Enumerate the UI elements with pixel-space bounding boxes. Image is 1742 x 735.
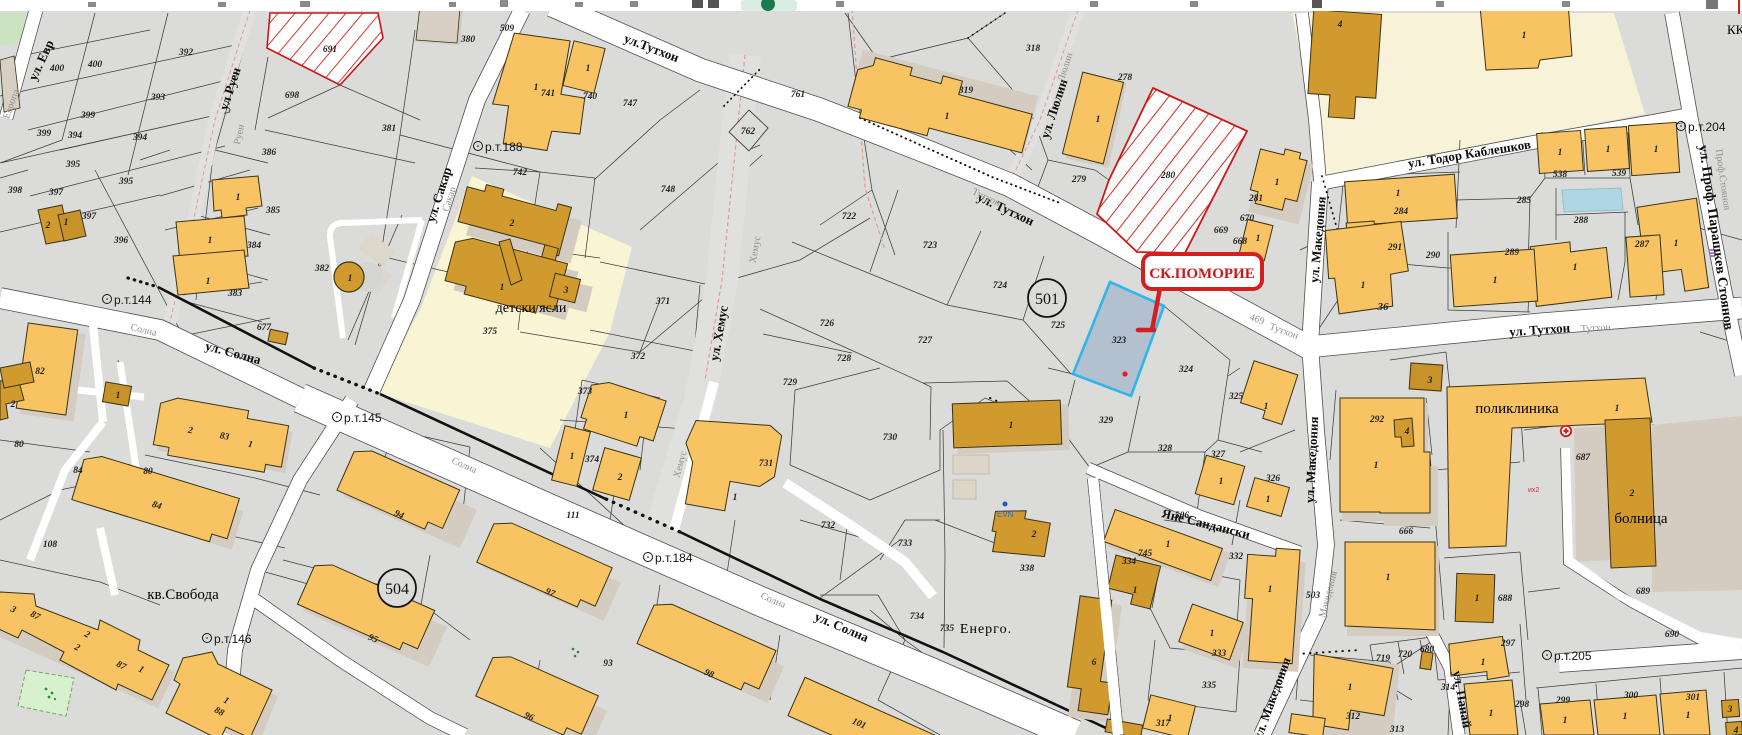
svg-text:392: 392 <box>178 48 194 58</box>
svg-text:1: 1 <box>1615 404 1620 414</box>
svg-text:285: 285 <box>1516 196 1532 206</box>
svg-text:1: 1 <box>1374 461 1379 471</box>
svg-text:1: 1 <box>1219 477 1224 487</box>
svg-text:669: 669 <box>1214 226 1229 236</box>
svg-text:83: 83 <box>219 431 230 443</box>
svg-text:394: 394 <box>67 131 83 141</box>
svg-text:374: 374 <box>584 455 600 465</box>
svg-text:399: 399 <box>36 129 52 139</box>
svg-text:384: 384 <box>246 241 262 251</box>
svg-text:722: 722 <box>842 212 857 222</box>
svg-text:318: 318 <box>1025 44 1041 54</box>
svg-text:312: 312 <box>1345 712 1361 722</box>
svg-text:1: 1 <box>1210 629 1215 639</box>
svg-text:1: 1 <box>236 193 241 203</box>
svg-text:724: 724 <box>993 281 1008 291</box>
svg-text:1: 1 <box>1264 402 1269 412</box>
svg-text:2: 2 <box>1031 530 1037 540</box>
svg-text:690: 690 <box>1665 630 1680 640</box>
svg-text:1: 1 <box>1623 712 1628 722</box>
svg-text:297: 297 <box>1500 639 1517 649</box>
svg-text:327: 327 <box>1210 450 1227 460</box>
svg-text:730: 730 <box>883 433 898 443</box>
svg-text:1: 1 <box>208 236 213 246</box>
svg-text:2: 2 <box>45 221 51 231</box>
svg-text:1: 1 <box>1256 234 1261 244</box>
svg-text:372: 372 <box>630 352 646 362</box>
svg-text:399: 399 <box>80 111 96 121</box>
svg-text:287: 287 <box>1634 240 1651 250</box>
svg-text:1: 1 <box>1481 658 1486 668</box>
svg-text:298: 298 <box>1514 700 1530 710</box>
svg-text:1: 1 <box>64 218 69 228</box>
svg-text:1: 1 <box>500 283 505 293</box>
svg-text:1: 1 <box>1361 281 1366 291</box>
svg-text:р.т.145: р.т.145 <box>344 411 382 425</box>
svg-text:1: 1 <box>624 411 629 421</box>
svg-text:677: 677 <box>257 323 273 333</box>
svg-text:748: 748 <box>661 185 676 195</box>
svg-text:329: 329 <box>1098 416 1114 426</box>
svg-text:740: 740 <box>583 92 598 102</box>
svg-text:720: 720 <box>1398 650 1413 660</box>
svg-text:1: 1 <box>1166 540 1171 550</box>
svg-text:4: 4 <box>1404 427 1410 437</box>
svg-text:болница: болница <box>1614 511 1668 527</box>
svg-text:670: 670 <box>1240 214 1255 224</box>
svg-text:1: 1 <box>1396 189 1401 199</box>
svg-text:Тутхон: Тутхон <box>1581 322 1612 335</box>
svg-text:р.т.146: р.т.146 <box>214 632 252 646</box>
svg-text:EVN: EVN <box>997 510 1014 519</box>
svg-text:291: 291 <box>1387 243 1402 253</box>
svg-text:4: 4 <box>1733 726 1739 735</box>
svg-text:1: 1 <box>1686 711 1691 721</box>
svg-text:733: 733 <box>898 539 913 549</box>
svg-text:397: 397 <box>81 212 98 222</box>
svg-text:1: 1 <box>116 391 121 401</box>
svg-text:р.т.205: р.т.205 <box>1554 649 1592 663</box>
svg-text:1: 1 <box>1168 714 1173 724</box>
svg-text:400: 400 <box>49 64 65 74</box>
svg-text:1: 1 <box>1573 263 1578 273</box>
svg-text:кв.Свобода: кв.Свобода <box>147 587 219 603</box>
svg-text:688: 688 <box>1498 594 1513 604</box>
svg-text:1: 1 <box>1654 145 1659 155</box>
svg-text:381: 381 <box>381 124 396 134</box>
svg-text:р.т.184: р.т.184 <box>655 551 693 565</box>
svg-text:332: 332 <box>1228 552 1244 562</box>
svg-text:386: 386 <box>261 148 277 158</box>
svg-text:108: 108 <box>43 540 58 550</box>
svg-text:288: 288 <box>1573 216 1589 226</box>
svg-text:719: 719 <box>1376 654 1391 664</box>
svg-text:281: 281 <box>1248 194 1263 204</box>
svg-text:668: 668 <box>1233 237 1248 247</box>
svg-text:383: 383 <box>227 289 243 299</box>
svg-text:742: 742 <box>513 168 528 178</box>
svg-text:36: 36 <box>1377 301 1390 313</box>
svg-text:р.т.144: р.т.144 <box>114 293 152 307</box>
svg-text:3: 3 <box>563 286 569 296</box>
svg-text:313: 313 <box>1389 725 1405 735</box>
svg-text:762: 762 <box>741 127 756 137</box>
svg-text:289: 289 <box>1504 248 1520 258</box>
svg-text:729: 729 <box>783 378 798 388</box>
svg-text:292: 292 <box>1369 415 1385 425</box>
svg-text:398: 398 <box>7 186 23 196</box>
svg-text:1: 1 <box>1386 573 1391 583</box>
svg-text:р.т.188: р.т.188 <box>485 140 523 154</box>
svg-text:741: 741 <box>541 89 555 99</box>
svg-text:1: 1 <box>570 452 575 462</box>
svg-text:538: 538 <box>1553 170 1568 180</box>
svg-text:328: 328 <box>1157 444 1173 454</box>
svg-text:501: 501 <box>1035 291 1059 308</box>
svg-text:395: 395 <box>118 177 134 187</box>
svg-text:80: 80 <box>143 467 153 477</box>
svg-text:1: 1 <box>1133 586 1138 596</box>
svg-text:Енерго.: Енерго. <box>960 622 1012 637</box>
svg-text:334: 334 <box>1121 557 1137 567</box>
svg-text:1: 1 <box>206 277 211 287</box>
svg-text:503: 503 <box>1306 591 1321 601</box>
svg-text:2: 2 <box>1629 489 1635 499</box>
svg-text:6: 6 <box>1092 658 1097 668</box>
svg-text:поликлиника: поликлиника <box>1475 401 1559 417</box>
svg-text:735: 735 <box>940 624 955 634</box>
svg-text:111: 111 <box>566 511 579 521</box>
svg-text:82: 82 <box>35 367 45 377</box>
svg-text:747: 747 <box>623 99 639 109</box>
svg-text:723: 723 <box>923 241 938 251</box>
svg-text:1: 1 <box>534 83 539 93</box>
svg-text:93: 93 <box>603 659 613 669</box>
svg-text:335: 335 <box>1201 681 1217 691</box>
svg-text:385: 385 <box>265 206 281 216</box>
svg-text:301: 301 <box>1685 693 1700 703</box>
svg-text:р.т.204: р.т.204 <box>1688 120 1726 134</box>
svg-text:1: 1 <box>1275 178 1280 188</box>
svg-text:380: 380 <box>460 35 476 45</box>
svg-text:2: 2 <box>617 473 623 483</box>
svg-text:1: 1 <box>1606 145 1611 155</box>
svg-text:278: 278 <box>1117 73 1133 83</box>
svg-text:1: 1 <box>1096 115 1101 125</box>
svg-text:3: 3 <box>1727 705 1733 715</box>
svg-text:1: 1 <box>1009 421 1014 431</box>
svg-text:299: 299 <box>1555 696 1571 706</box>
svg-text:397: 397 <box>48 188 65 198</box>
svg-text:325: 325 <box>1228 392 1244 402</box>
svg-text:84: 84 <box>73 466 83 476</box>
svg-text:детски ясли: детски ясли <box>496 301 567 316</box>
svg-text:666: 666 <box>1399 527 1414 537</box>
svg-text:727: 727 <box>918 336 934 346</box>
svg-text:1: 1 <box>348 274 353 284</box>
svg-text:1: 1 <box>586 64 591 74</box>
svg-text:373: 373 <box>577 387 593 397</box>
svg-text:728: 728 <box>837 354 852 364</box>
svg-text:324: 324 <box>1178 365 1194 375</box>
svg-text:80: 80 <box>14 440 24 450</box>
svg-text:394: 394 <box>132 133 148 143</box>
svg-text:323: 323 <box>1111 336 1127 346</box>
svg-text:680: 680 <box>1420 645 1435 655</box>
svg-text:689: 689 <box>1636 587 1651 597</box>
svg-text:691: 691 <box>323 45 337 55</box>
svg-text:319: 319 <box>958 86 974 96</box>
svg-text:375: 375 <box>482 327 498 337</box>
svg-text:1: 1 <box>1558 148 1563 158</box>
svg-text:2: 2 <box>509 219 515 229</box>
svg-text:1: 1 <box>1268 585 1273 595</box>
svg-text:504: 504 <box>385 581 409 598</box>
svg-text:761: 761 <box>791 90 805 100</box>
svg-text:284: 284 <box>1393 207 1409 217</box>
svg-text:4: 4 <box>1337 20 1343 30</box>
svg-text:326: 326 <box>1265 474 1281 484</box>
svg-text:1: 1 <box>1563 716 1568 726</box>
svg-text:338: 338 <box>1019 564 1035 574</box>
svg-text:687: 687 <box>1576 453 1592 463</box>
svg-text:395: 395 <box>65 160 81 170</box>
svg-text:371: 371 <box>655 297 670 307</box>
svg-text:745: 745 <box>1138 549 1153 559</box>
svg-text:382: 382 <box>314 264 330 274</box>
svg-text:280: 280 <box>1160 171 1176 181</box>
svg-text:734: 734 <box>910 612 925 622</box>
svg-text:509: 509 <box>500 24 515 34</box>
svg-text:726: 726 <box>820 319 835 329</box>
svg-text:333: 333 <box>1211 649 1227 659</box>
svg-text:1: 1 <box>1266 495 1271 505</box>
svg-text:СК.ПОМОРИЕ: СК.ПОМОРИЕ <box>1149 266 1254 282</box>
svg-text:300: 300 <box>1623 691 1639 701</box>
svg-text:1: 1 <box>1475 594 1480 604</box>
svg-text:400: 400 <box>87 60 103 70</box>
svg-text:3: 3 <box>1427 376 1433 386</box>
svg-text:их2: их2 <box>1528 487 1539 494</box>
svg-text:539: 539 <box>1612 169 1627 179</box>
svg-text:1: 1 <box>1674 239 1679 249</box>
svg-text:732: 732 <box>821 521 836 531</box>
svg-text:ККС: ККС <box>1727 22 1742 37</box>
svg-text:290: 290 <box>1425 251 1441 261</box>
svg-text:2: 2 <box>10 400 16 410</box>
svg-text:725: 725 <box>1051 321 1066 331</box>
svg-text:1: 1 <box>1522 31 1527 41</box>
svg-text:1: 1 <box>733 493 738 503</box>
svg-text:731: 731 <box>759 459 773 469</box>
svg-text:1: 1 <box>1493 276 1498 286</box>
svg-text:1: 1 <box>1489 709 1494 719</box>
svg-text:698: 698 <box>285 91 300 101</box>
svg-text:279: 279 <box>1071 175 1087 185</box>
svg-text:396: 396 <box>113 236 129 246</box>
svg-text:1: 1 <box>1348 683 1353 693</box>
svg-text:1: 1 <box>945 112 950 122</box>
svg-text:393: 393 <box>150 93 166 103</box>
